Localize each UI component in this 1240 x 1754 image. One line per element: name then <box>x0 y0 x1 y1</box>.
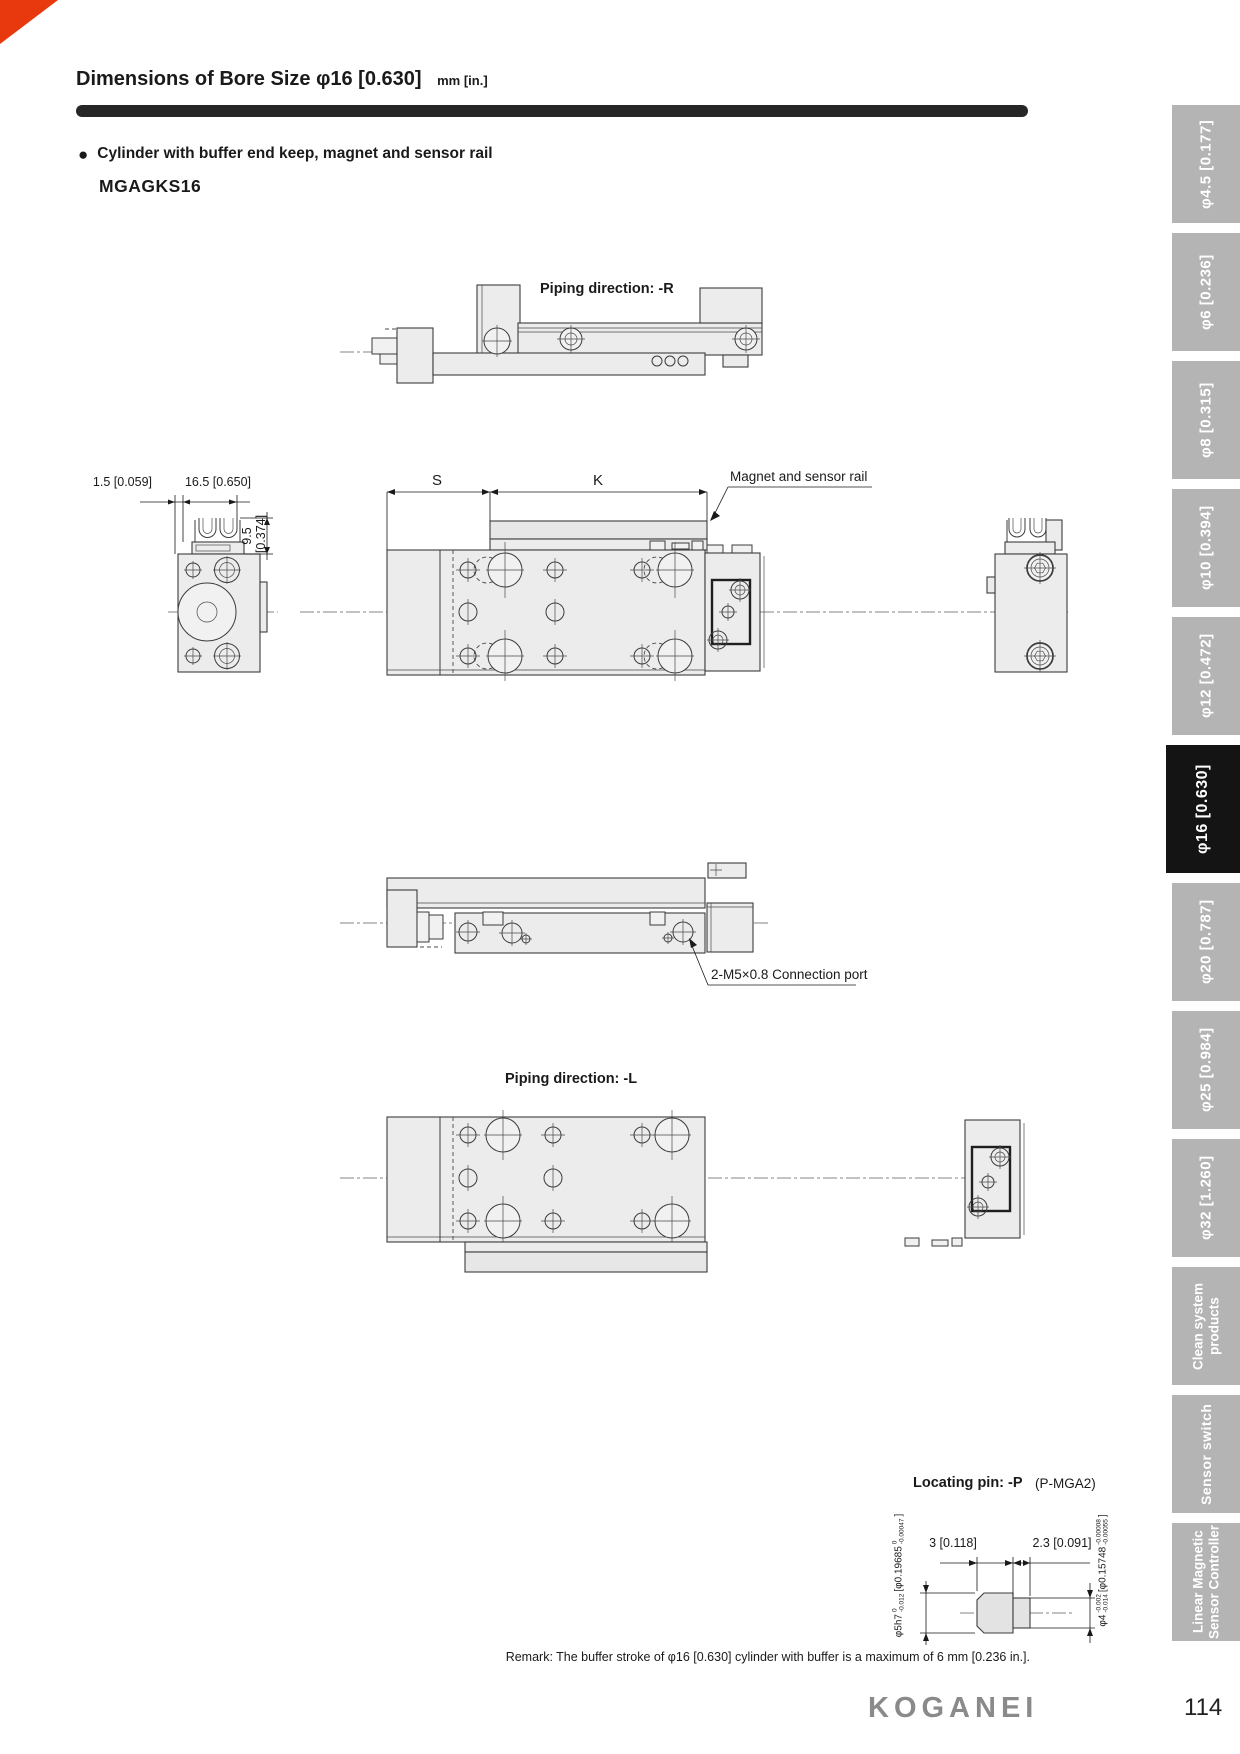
sidebar-tab-bore-20[interactable]: φ20 [0.787] <box>1172 883 1240 1001</box>
dim-s-label: S <box>432 472 442 489</box>
dim-16-5-label: 16.5 [0.650] <box>185 475 251 489</box>
section-heading: ● Cylinder with buffer end keep, magnet … <box>78 145 493 163</box>
side-view-ports-drawing: 2-M5×0.8 Connection port <box>340 855 1000 995</box>
sidebar-tab-bore-10[interactable]: φ10 [0.394] <box>1172 489 1240 607</box>
model-number: MGAGKS16 <box>99 176 201 197</box>
dim-9-5-label: 9.5 <box>240 527 254 544</box>
remark-note: Remark: The buffer stroke of φ16 [0.630]… <box>430 1650 1030 1664</box>
top-side-view-drawing <box>340 265 770 390</box>
page-corner-marker <box>0 0 58 44</box>
page-title-units: mm [in.] <box>437 73 488 88</box>
pin-dim-3-label: 3 [0.118] <box>929 1536 977 1550</box>
dim-1-5-label: 1.5 [0.059] <box>93 475 152 489</box>
pin-diameter-right-label: φ4 -0.002-0.014 [φ0.15748 -0.00008-0.000… <box>1096 1490 1111 1650</box>
brand-logo: KOGANEI <box>868 1692 1038 1725</box>
title-rule-bar <box>76 105 1028 117</box>
sidebar-tab-bore-12[interactable]: φ12 [0.472] <box>1172 617 1240 735</box>
section-heading-text: Cylinder with buffer end keep, magnet an… <box>97 145 492 163</box>
page-number: 114 <box>1184 1694 1222 1722</box>
sidebar-tab-clean-system[interactable]: Clean system products <box>1172 1267 1240 1385</box>
page-title-text: Dimensions of Bore Size <box>76 68 311 90</box>
sidebar-tab-bore-6[interactable]: φ6 [0.236] <box>1172 233 1240 351</box>
dim-9-5-inch-label: [0.374] <box>254 515 268 553</box>
sidebar-tab-bore-8[interactable]: φ8 [0.315] <box>1172 361 1240 479</box>
page-title-bore: φ16 [0.630] <box>316 68 421 90</box>
magnet-rail-label: Magnet and sensor rail <box>730 469 867 484</box>
catalog-page: Dimensions of Bore Size φ16 [0.630] mm [… <box>0 0 1240 1754</box>
locating-pin-drawing: 3 [0.118] 2.3 [0.091] <box>880 1495 1130 1655</box>
locating-pin-heading: Locating pin: -P <box>913 1475 1023 1491</box>
sidebar-tab-bore-4-5[interactable]: φ4.5 [0.177] <box>1172 105 1240 223</box>
locating-pin-heading-note: (P-MGA2) <box>1035 1476 1096 1491</box>
sidebar-tab-linear-magnetic[interactable]: Linear Magnetic Sensor Controller <box>1172 1523 1240 1641</box>
bullet-icon: ● <box>78 146 88 163</box>
sidebar-tab-sensor-switch[interactable]: Sensor switch <box>1172 1395 1240 1513</box>
bottom-plan-view-drawing <box>340 1105 990 1280</box>
pin-diameter-left-label: φ5h7 0-0.012 [φ0.19685 0-0.00047 ] <box>892 1500 907 1650</box>
piping-direction-l-label: Piping direction: -L <box>505 1071 637 1087</box>
sidebar-tab-bore-16-active[interactable]: φ16 [0.630] <box>1166 745 1240 873</box>
dim-k-label: K <box>593 472 603 489</box>
page-title: Dimensions of Bore Size φ16 [0.630] mm [… <box>76 68 488 91</box>
sidebar-tab-bore-25[interactable]: φ25 [0.984] <box>1172 1011 1240 1129</box>
plan-view-drawing: 1.5 [0.059] 16.5 [0.650] 9.5 [0.374] <box>80 450 1070 690</box>
connection-port-label: 2-M5×0.8 Connection port <box>711 967 868 982</box>
sidebar-tab-bore-32[interactable]: φ32 [1.260] <box>1172 1139 1240 1257</box>
pin-dim-2-3-label: 2.3 [0.091] <box>1032 1536 1091 1550</box>
